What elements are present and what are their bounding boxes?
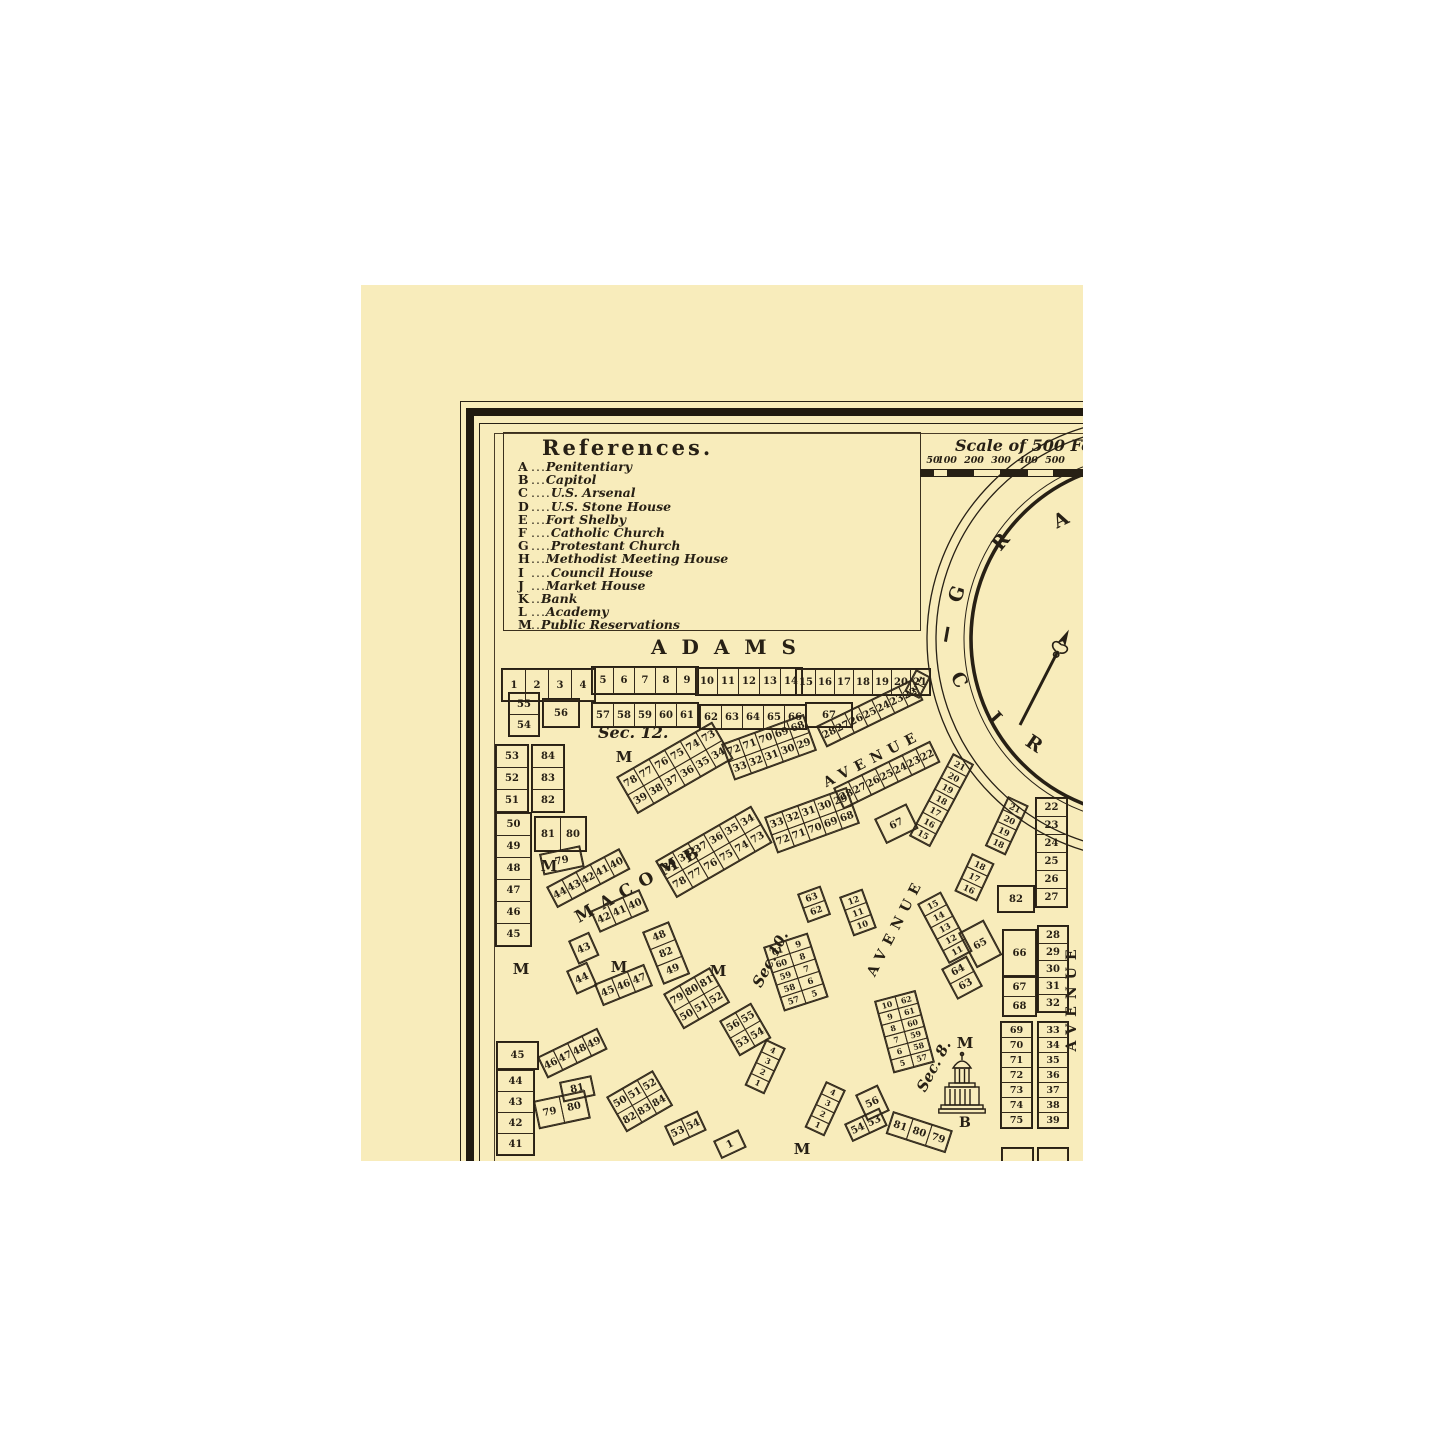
lot-cell: 44 — [497, 1070, 534, 1092]
lot-cell: 7 — [634, 667, 656, 694]
scale-tick-label: 100 — [937, 455, 957, 466]
lot-cell: 45 — [497, 1042, 538, 1069]
lot-cell: 10 — [696, 668, 718, 695]
lot-cell: 11 — [717, 668, 739, 695]
lot-block: 33343536373839 — [1037, 1021, 1069, 1129]
lot-block: 2829303132 — [1037, 925, 1069, 1013]
lot-cell: 41 — [497, 1133, 534, 1155]
lot-block: 45 — [496, 1041, 539, 1070]
scale-tick-label: 200 — [964, 455, 984, 466]
reservation-marker: M — [513, 960, 530, 978]
lot-cell: 75 — [1001, 1112, 1032, 1128]
lot-cell: 25 — [1036, 852, 1067, 871]
lot-block: 5758596061 — [591, 702, 699, 728]
reservation-marker: M — [957, 1034, 974, 1052]
lot-cell: 82 — [998, 886, 1034, 912]
lot-cell: 29 — [1038, 943, 1068, 961]
lot-cell: 12 — [738, 668, 760, 695]
lot-cell: 24 — [1036, 834, 1067, 853]
lot-cell: 61 — [676, 703, 698, 727]
lot-cell: 32 — [1038, 994, 1068, 1012]
street-label-adams: ADAMS — [646, 635, 816, 659]
lot-cell: 57 — [592, 703, 614, 727]
lot-cell: 18 — [853, 669, 873, 695]
lot-block: 535251 — [495, 744, 529, 813]
lot-block: 56789 — [591, 666, 699, 695]
lot-cell: 6 — [613, 667, 635, 694]
lot-block — [1037, 1147, 1069, 1161]
lot-cell: 69 — [1001, 1022, 1032, 1038]
lot-block: 69707172737475 — [1000, 1021, 1033, 1129]
lot-cell: 27 — [1036, 888, 1067, 907]
lot-block: 5554 — [508, 692, 540, 737]
lot-cell: 16 — [815, 669, 835, 695]
lot-cell: 39 — [1038, 1112, 1068, 1128]
capitol-label: B — [959, 1115, 971, 1131]
lot-cell: 5 — [592, 667, 614, 694]
scale-tick-label: 500 — [1045, 455, 1065, 466]
lot-cell: 82 — [532, 789, 564, 812]
lot-cell — [1038, 1148, 1068, 1161]
lot-cell: 8 — [655, 667, 677, 694]
lot-cell: 66 — [1003, 930, 1036, 976]
lot-block: 1011121314 — [695, 667, 803, 696]
lot-cell: 60 — [655, 703, 677, 727]
lot-cell: 33 — [1038, 1022, 1068, 1038]
lot-cell: 42 — [497, 1112, 534, 1134]
compass-needle — [1020, 626, 1076, 725]
scale-tick-label: 300 — [991, 455, 1011, 466]
lot-cell: 56 — [543, 699, 579, 727]
lot-cell — [1002, 1148, 1033, 1161]
page-background: References. A...PenitentiaryB...CapitolC… — [0, 0, 1445, 1445]
lot-cell: 35 — [1038, 1052, 1068, 1068]
lot-cell: 83 — [532, 767, 564, 790]
lot-cell: 68 — [1003, 996, 1036, 1016]
reservation-marker: M — [794, 1140, 811, 1158]
lot-cell: 64 — [742, 705, 764, 729]
lot-cell: 13 — [759, 668, 781, 695]
lot-cell: 3 — [548, 669, 572, 701]
lot-cell: 34 — [1038, 1037, 1068, 1053]
lot-cell: 70 — [1001, 1037, 1032, 1053]
lot-cell: 31 — [1038, 977, 1068, 995]
lot-cell: 55 — [509, 693, 539, 715]
lot-cell: 74 — [1001, 1097, 1032, 1113]
lot-cell: 71 — [1001, 1052, 1032, 1068]
lot-block: 848382 — [531, 744, 565, 813]
lot-cell: 45 — [496, 923, 531, 946]
lot-cell: 84 — [532, 745, 564, 768]
lot-cell: 36 — [1038, 1067, 1068, 1083]
lot-block — [1001, 1147, 1034, 1161]
lot-cell: 28 — [1038, 926, 1068, 944]
lot-cell: 38 — [1038, 1097, 1068, 1113]
lot-block: 222324252627 — [1035, 797, 1068, 908]
lot-cell: 15 — [796, 669, 816, 695]
lot-cell: 37 — [1038, 1082, 1068, 1098]
lot-cell: 63 — [721, 705, 743, 729]
lot-cell: 67 — [1003, 977, 1036, 997]
lot-cell: 50 — [496, 813, 531, 836]
lot-cell: 47 — [496, 879, 531, 902]
lot-block: 44434241 — [496, 1069, 535, 1156]
lot-cell: 48 — [496, 857, 531, 880]
lot-cell: 30 — [1038, 960, 1068, 978]
lot-cell: 22 — [1036, 798, 1067, 817]
lot-cell: 51 — [496, 789, 528, 812]
map-sheet: References. A...PenitentiaryB...CapitolC… — [361, 285, 1083, 1161]
lot-cell: 26 — [1036, 870, 1067, 889]
lot-cell: 54 — [509, 714, 539, 736]
lot-cell: 43 — [497, 1091, 534, 1113]
lot-cell: 58 — [613, 703, 635, 727]
lot-cell: 72 — [1001, 1067, 1032, 1083]
scale-tick-label: 400 — [1018, 455, 1038, 466]
lot-block: 56 — [542, 698, 580, 728]
lot-cell: 53 — [496, 745, 528, 768]
reservation-marker: M — [616, 748, 633, 766]
lot-cell: 73 — [1001, 1082, 1032, 1098]
lot-block: 82 — [997, 885, 1035, 913]
lot-cell: 49 — [496, 835, 531, 858]
lot-block: 504948474645 — [495, 812, 532, 947]
lot-cell: 59 — [634, 703, 656, 727]
lot-cell: 46 — [496, 901, 531, 924]
lot-cell: 17 — [834, 669, 854, 695]
lot-block: 66 — [1002, 929, 1037, 977]
lot-cell: 23 — [1036, 816, 1067, 835]
lot-block: 6768 — [1002, 976, 1037, 1017]
lot-cell: 52 — [496, 767, 528, 790]
lot-cell: 81 — [535, 817, 561, 851]
